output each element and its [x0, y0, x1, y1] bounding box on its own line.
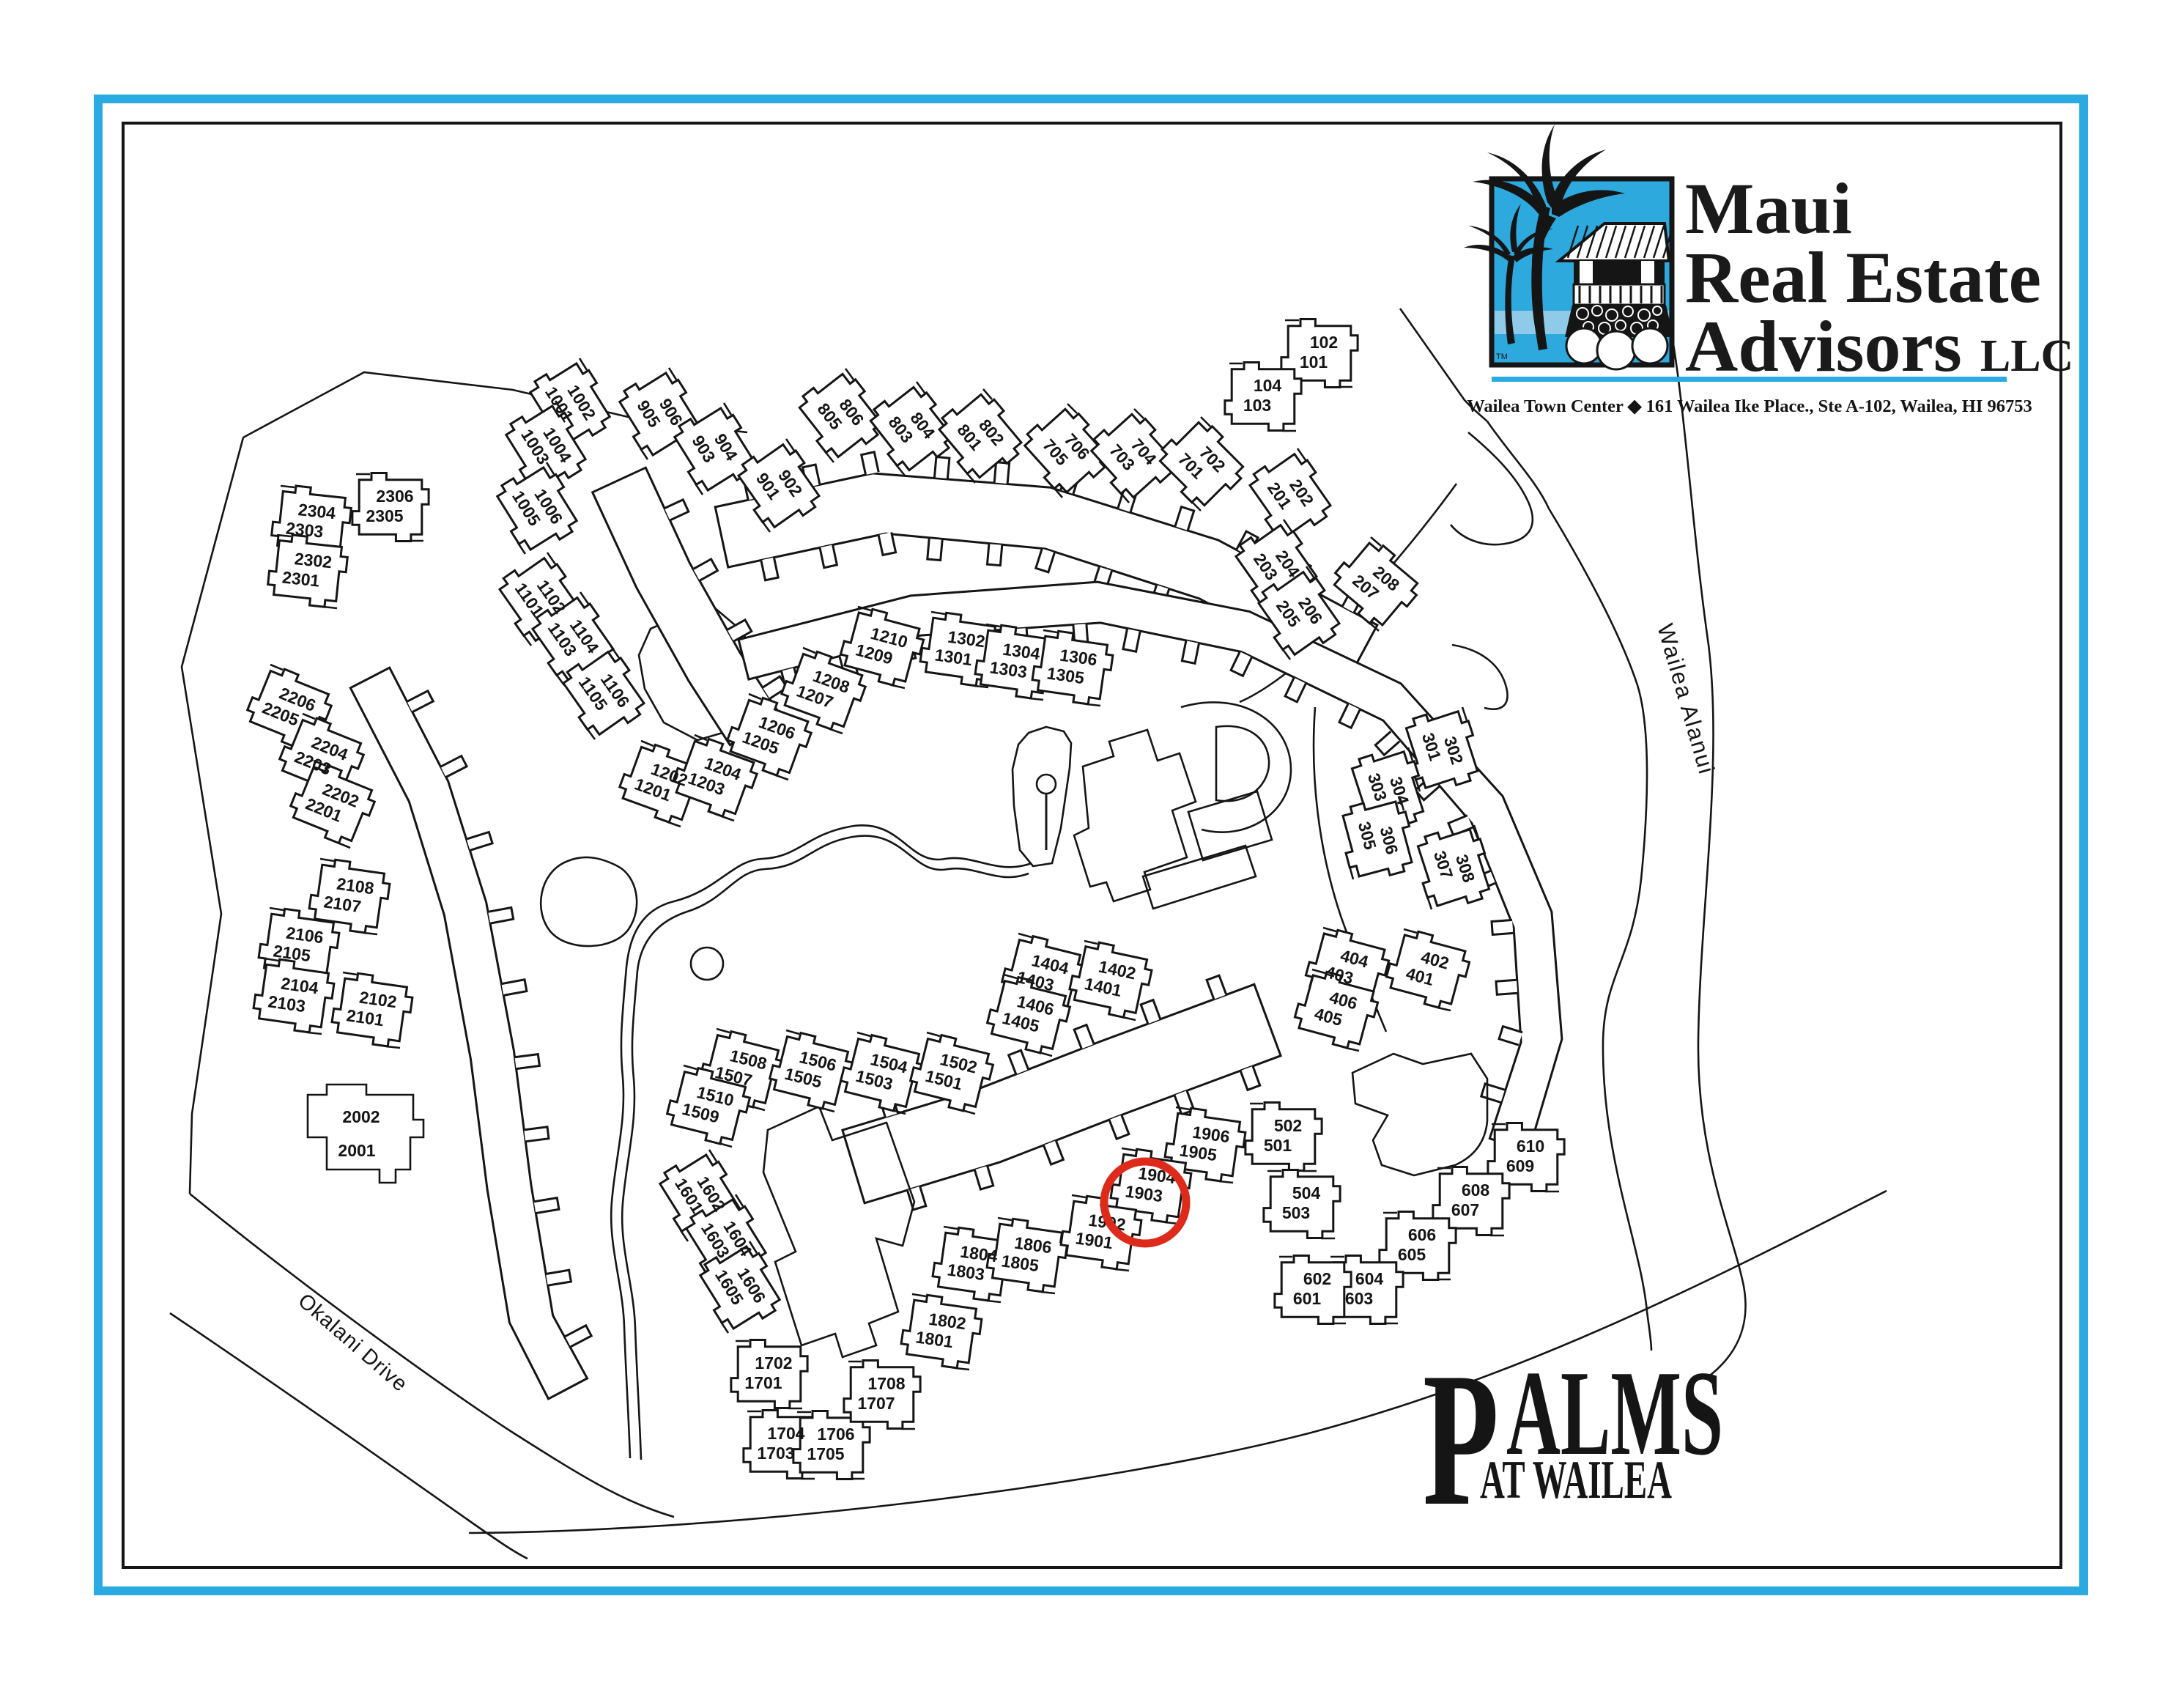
svg-text:502: 502: [1274, 1116, 1302, 1135]
svg-text:602: 602: [1303, 1269, 1331, 1288]
svg-text:1703: 1703: [757, 1444, 794, 1463]
svg-text:610: 610: [1517, 1137, 1544, 1156]
svg-text:607: 607: [1451, 1200, 1479, 1219]
svg-text:2304: 2304: [297, 500, 337, 522]
svg-text:Wailea Town Center ◆ 161 Waile: Wailea Town Center ◆ 161 Wailea Ike Plac…: [1467, 396, 2032, 416]
svg-text:604: 604: [1355, 1269, 1384, 1288]
svg-text:2001: 2001: [338, 1141, 375, 1160]
svg-text:605: 605: [1398, 1245, 1426, 1264]
svg-text:504: 504: [1292, 1183, 1321, 1202]
svg-text:1707: 1707: [857, 1394, 895, 1413]
svg-text:1702: 1702: [755, 1353, 792, 1373]
svg-text:603: 603: [1345, 1289, 1373, 1308]
svg-text:609: 609: [1506, 1156, 1534, 1175]
svg-text:1701: 1701: [744, 1373, 782, 1392]
svg-text:2002: 2002: [342, 1107, 380, 1126]
svg-text:501: 501: [1264, 1136, 1292, 1155]
svg-text:103: 103: [1243, 396, 1271, 415]
svg-text:2303: 2303: [285, 518, 325, 541]
svg-text:2305: 2305: [366, 506, 403, 525]
svg-text:102: 102: [1310, 333, 1338, 352]
svg-text:1705: 1705: [807, 1444, 844, 1463]
svg-text:2306: 2306: [376, 487, 413, 506]
svg-text:P: P: [1423, 1333, 1499, 1545]
svg-text:2302: 2302: [294, 549, 333, 572]
svg-text:601: 601: [1293, 1289, 1322, 1308]
svg-text:2301: 2301: [281, 567, 321, 590]
svg-text:608: 608: [1462, 1181, 1490, 1200]
svg-text:503: 503: [1282, 1203, 1310, 1222]
svg-text:AT WAILEA: AT WAILEA: [1480, 1450, 1672, 1510]
svg-text:104: 104: [1254, 376, 1282, 395]
svg-text:TM: TM: [1496, 352, 1508, 361]
svg-text:1706: 1706: [817, 1425, 854, 1444]
svg-text:1704: 1704: [767, 1424, 804, 1443]
svg-text:1708: 1708: [867, 1374, 905, 1393]
svg-text:101: 101: [1300, 352, 1328, 372]
svg-text:606: 606: [1408, 1225, 1436, 1244]
